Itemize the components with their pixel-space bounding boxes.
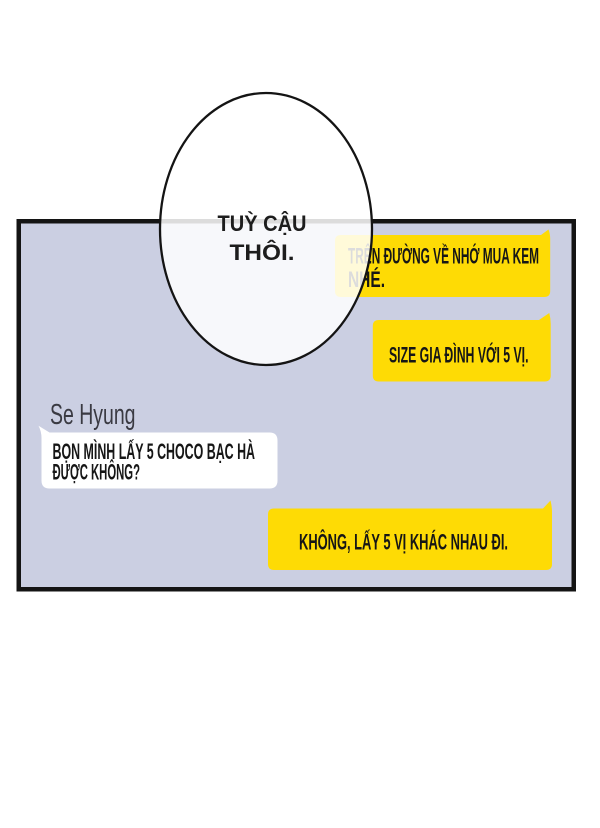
svg-text:KHÔNG, LẤY 5 VỊ KHÁC NHAU ĐI.: KHÔNG, LẤY 5 VỊ KHÁC NHAU ĐI.	[299, 530, 508, 555]
svg-text:THÔI.: THÔI.	[230, 240, 295, 265]
svg-text:TRÊN ĐƯỜNG VỀ NHỚ MUA KEM: TRÊN ĐƯỜNG VỀ NHỚ MUA KEM	[348, 244, 539, 269]
svg-text:TUỲ CẬU: TUỲ CẬU	[218, 211, 307, 236]
svg-text:ĐƯỢC KHÔNG?: ĐƯỢC KHÔNG?	[53, 460, 141, 485]
svg-text:SIZE GIA ĐÌNH VỚI 5 VỊ.: SIZE GIA ĐÌNH VỚI 5 VỊ.	[389, 343, 529, 368]
svg-text:Se Hyung: Se Hyung	[50, 399, 136, 431]
